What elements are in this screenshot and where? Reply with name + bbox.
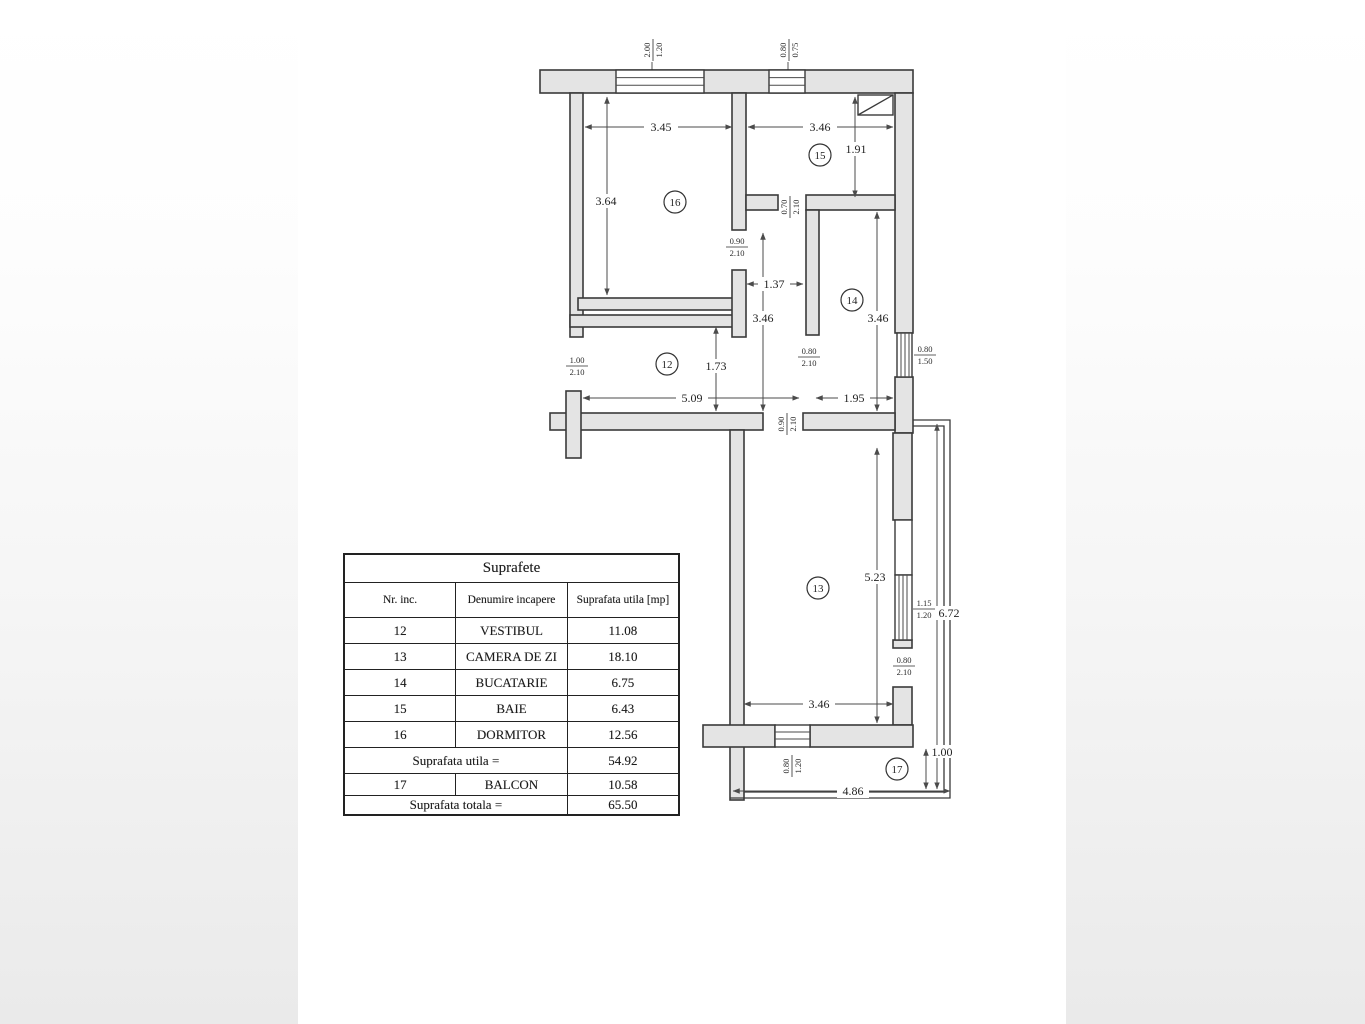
- col-header-number: Nr. inc.: [344, 583, 456, 618]
- svg-text:0.80: 0.80: [918, 344, 933, 354]
- subtotal-label: Suprafata utila =: [344, 748, 567, 774]
- svg-text:0.75: 0.75: [790, 43, 800, 58]
- subtotal-row: Suprafata utila = 54.92: [344, 748, 679, 774]
- cell-room-area: 11.08: [567, 618, 679, 644]
- table-row: 17 BALCON 10.58: [344, 774, 679, 796]
- room-number-12: 12: [662, 359, 673, 371]
- dim-label-hall-height: 3.46: [753, 311, 774, 325]
- cell-room-number: 13: [344, 644, 456, 670]
- table-row: 15 BAIE 6.43: [344, 696, 679, 722]
- dim-label-kitchen-width: 1.95: [844, 391, 865, 405]
- svg-text:2.10: 2.10: [897, 667, 912, 677]
- dim-label-hall-width: 1.37: [764, 277, 785, 291]
- dim-label-living-height: 5.23: [865, 570, 886, 584]
- svg-text:0.80: 0.80: [778, 43, 788, 58]
- wall-segment: [578, 298, 735, 310]
- svg-text:0.80: 0.80: [897, 655, 912, 665]
- cell-room-name: BUCATARIE: [456, 670, 568, 696]
- window-living-upper: [895, 520, 912, 575]
- wall-segment: [895, 377, 913, 433]
- opening-label-door-living: 0.90 2.10: [776, 413, 798, 435]
- svg-text:1.20: 1.20: [793, 759, 803, 774]
- wall-segment: [893, 687, 912, 725]
- cell-room-number: 16: [344, 722, 456, 748]
- wall-segment: [732, 270, 746, 337]
- room-number-13: 13: [813, 583, 825, 595]
- table-row: 13 CAMERA DE ZI 18.10: [344, 644, 679, 670]
- cell-room-number: 12: [344, 618, 456, 644]
- dim-label-bath-width: 3.46: [810, 120, 831, 134]
- room-number-14: 14: [847, 295, 859, 307]
- opening-label-window-living-bottom: 0.80 1.20: [781, 755, 803, 777]
- table-title: Suprafete: [344, 554, 679, 583]
- dim-label-balcony-depth: 1.00: [932, 745, 953, 759]
- svg-text:2.00: 2.00: [642, 43, 652, 58]
- cell-room-name: DORMITOR: [456, 722, 568, 748]
- svg-text:2.10: 2.10: [788, 417, 798, 432]
- wall-segment: [550, 413, 763, 430]
- window-bedroom: [616, 70, 704, 93]
- svg-text:2.10: 2.10: [730, 248, 745, 258]
- wall-segment: [540, 70, 913, 93]
- wall-segment: [806, 210, 819, 335]
- opening-label-window-bedroom: 2.00 1.20: [642, 39, 664, 61]
- floor-plan: 3.45 3.46 1.91 3.64 1.37 3.46 3.46 1.73 …: [0, 0, 1365, 1024]
- svg-text:2.10: 2.10: [791, 200, 801, 215]
- svg-text:1.20: 1.20: [917, 610, 932, 620]
- total-label: Suprafata totala =: [344, 796, 567, 816]
- dim-label-bedroom-height: 3.64: [596, 194, 617, 208]
- opening-label-window-bath: 0.80 0.75: [778, 39, 800, 61]
- opening-label-door-entry: 1.00 2.10: [566, 355, 588, 377]
- cell-room-number: 14: [344, 670, 456, 696]
- wall-segment: [895, 93, 913, 333]
- cell-room-name: BALCON: [456, 774, 568, 796]
- total-value: 65.50: [567, 796, 679, 816]
- dim-label-bath-height: 1.91: [846, 142, 867, 156]
- svg-text:2.10: 2.10: [570, 367, 585, 377]
- svg-text:1.50: 1.50: [918, 356, 933, 366]
- dim-label-balcony-width: 4.86: [843, 784, 864, 798]
- opening-label-door-kitchen: 0.80 2.10: [798, 346, 820, 368]
- wall-segment: [810, 725, 913, 747]
- dim-label-vestibule-height: 1.73: [706, 359, 727, 373]
- subtotal-value: 54.92: [567, 748, 679, 774]
- wall-segment: [570, 315, 740, 327]
- svg-text:1.00: 1.00: [570, 355, 585, 365]
- cell-room-name: CAMERA DE ZI: [456, 644, 568, 670]
- opening-label-door-bath: 0.70 2.10: [779, 196, 801, 218]
- svg-text:0.90: 0.90: [776, 417, 786, 432]
- wall-segment: [566, 391, 581, 458]
- table-row: 16 DORMITOR 12.56: [344, 722, 679, 748]
- cell-room-area: 6.43: [567, 696, 679, 722]
- dim-label-vestibule-width: 5.09: [682, 391, 703, 405]
- table-row: 12 VESTIBUL 11.08: [344, 618, 679, 644]
- col-header-area: Suprafata utila [mp]: [567, 583, 679, 618]
- dim-label-kitchen-height: 3.46: [868, 311, 889, 325]
- wall-segment: [703, 725, 775, 747]
- svg-text:0.90: 0.90: [730, 236, 745, 246]
- opening-label-window-living-right: 1.15 1.20: [913, 598, 935, 620]
- dim-label-bedroom-width: 3.45: [651, 120, 672, 134]
- wall-segment: [746, 195, 778, 210]
- svg-text:1.20: 1.20: [654, 43, 664, 58]
- room-number-17: 17: [892, 764, 904, 776]
- svg-text:0.80: 0.80: [802, 346, 817, 356]
- wall-segment: [803, 413, 895, 430]
- svg-text:0.70: 0.70: [779, 200, 789, 215]
- room-markers: 16 15 14 12 13 17: [656, 144, 908, 780]
- dim-label-living-width: 3.46: [809, 697, 830, 711]
- areas-table: Suprafete Nr. inc. Denumire incapere Sup…: [343, 553, 680, 816]
- cell-room-area: 6.75: [567, 670, 679, 696]
- wall-segment: [806, 195, 895, 210]
- cell-room-area: 12.56: [567, 722, 679, 748]
- cell-room-area: 18.10: [567, 644, 679, 670]
- dim-label-balcony-length: 6.72: [939, 606, 960, 620]
- cell-room-number: 15: [344, 696, 456, 722]
- opening-label-door-balcony: 0.80 2.10: [893, 655, 915, 677]
- table-row: 14 BUCATARIE 6.75: [344, 670, 679, 696]
- cell-room-number: 17: [344, 774, 456, 796]
- total-row: Suprafata totala = 65.50: [344, 796, 679, 816]
- wall-segment: [893, 640, 912, 648]
- wall-segment: [732, 93, 746, 230]
- room-number-16: 16: [670, 197, 682, 209]
- cell-room-name: VESTIBUL: [456, 618, 568, 644]
- page: 3.45 3.46 1.91 3.64 1.37 3.46 3.46 1.73 …: [0, 0, 1365, 1024]
- window-living-bottom: [775, 725, 810, 747]
- window-bath: [769, 70, 805, 93]
- svg-text:0.80: 0.80: [781, 759, 791, 774]
- wall-segment: [893, 433, 912, 520]
- cell-room-name: BAIE: [456, 696, 568, 722]
- col-header-room-name: Denumire incapere: [456, 583, 568, 618]
- svg-text:2.10: 2.10: [802, 358, 817, 368]
- room-number-15: 15: [815, 150, 827, 162]
- opening-label-door-bedroom: 0.90 2.10: [726, 236, 748, 258]
- opening-label-window-kitchen: 0.80 1.50: [914, 344, 936, 366]
- cell-room-area: 10.58: [567, 774, 679, 796]
- svg-text:1.15: 1.15: [917, 598, 932, 608]
